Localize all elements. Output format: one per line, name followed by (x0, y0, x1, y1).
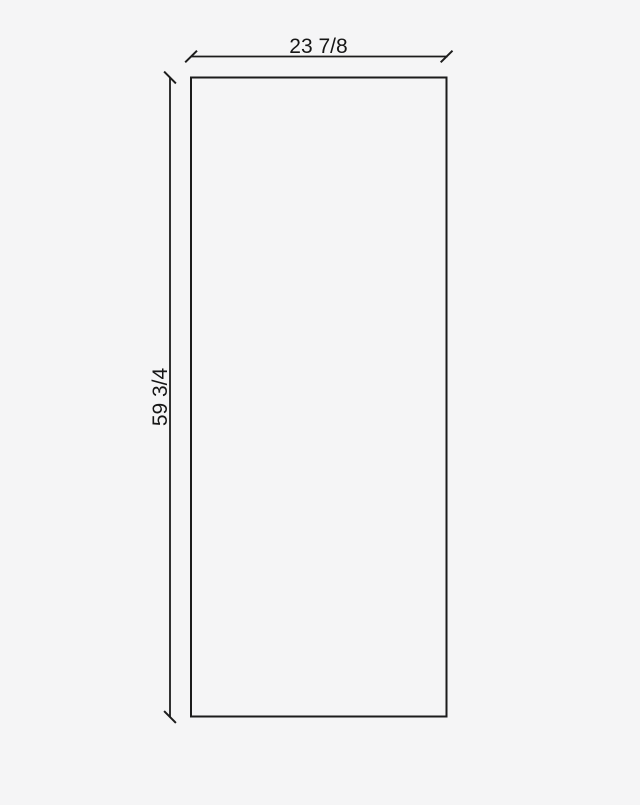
svg-text:59 3/4: 59 3/4 (149, 367, 172, 426)
svg-text:23 7/8: 23 7/8 (289, 35, 347, 58)
